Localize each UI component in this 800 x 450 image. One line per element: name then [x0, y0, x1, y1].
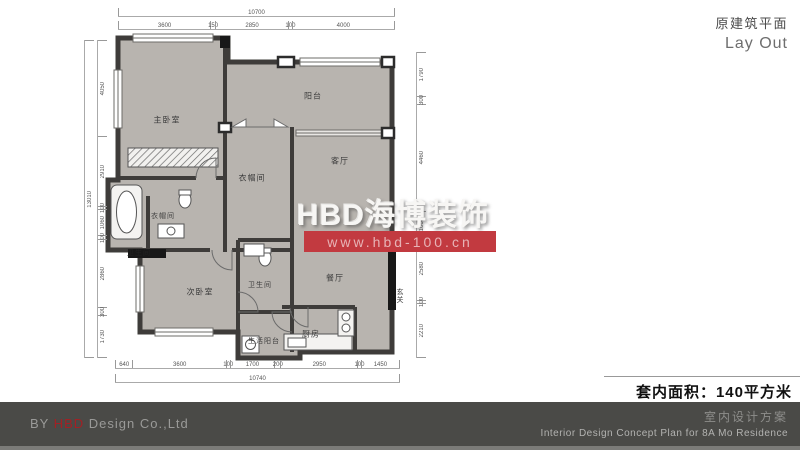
- sheet-title-en: Lay Out: [715, 35, 788, 53]
- dim-top-segments: 360015028501004000: [118, 21, 395, 30]
- dimension-value: 4000: [292, 21, 395, 29]
- sheet-header: 原建筑平面 Lay Out: [715, 13, 788, 53]
- dimension-value: 10740: [115, 374, 400, 382]
- footer-company: BY HBD Design Co.,Ltd: [30, 416, 189, 431]
- dim-top-total: 10700: [118, 8, 395, 17]
- room-label-bathroom-left: 卫生间: [127, 248, 151, 258]
- dimension-value: 3600: [132, 360, 226, 368]
- dimension-value: 300: [417, 96, 426, 104]
- dimension-value: 10700: [118, 8, 395, 16]
- dimension-value: 2850: [215, 21, 288, 29]
- dimension-value: 1060: [98, 209, 107, 235]
- footer-project: 室内设计方案 Interior Design Concept Plan for …: [541, 408, 788, 439]
- room-label-entry-hall: 玄关: [394, 288, 404, 304]
- footer-title-cn: 室内设计方案: [541, 408, 788, 425]
- dim-bottom-segments: 6403600100170020029501001450: [115, 360, 400, 369]
- footer-by: BY: [30, 416, 54, 431]
- room-label-service-balcony: 生活阳台: [248, 336, 280, 346]
- dimension-value: 2950: [280, 360, 357, 368]
- footer-brand: HBD: [54, 416, 84, 431]
- dimension-value: 1790: [417, 52, 426, 96]
- area-note-divider: [604, 376, 800, 377]
- dim-left-segments: 40502910100106010028603001730: [97, 40, 107, 358]
- area-note: 套内面积：140平方米: [636, 381, 792, 402]
- dimension-value: 1730: [98, 315, 107, 358]
- dimension-value: 4050: [98, 40, 107, 136]
- room-label-kitchen: 厨房: [302, 329, 320, 340]
- room-label-balcony: 阳台: [304, 91, 322, 102]
- footer-company-name: Design Co.,Ltd: [84, 416, 189, 431]
- room-label-closet-small: 衣帽间: [151, 211, 175, 221]
- dimension-value: 300: [98, 307, 107, 315]
- dimension-value: 2860: [98, 239, 107, 307]
- dimension-value: 100: [98, 235, 107, 238]
- watermark-url-banner: www.hbd-100.cn: [304, 231, 496, 252]
- dimension-value: 100: [417, 300, 426, 303]
- page: { "header": { "title_cn": "原建筑平面", "titl…: [0, 0, 800, 450]
- footer-title-en: Interior Design Concept Plan for 8A Mo R…: [541, 428, 788, 439]
- room-label-living-room: 客厅: [331, 156, 349, 167]
- room-label-bathroom-center: 卫生间: [248, 280, 272, 290]
- footer-bar: BY HBD Design Co.,Ltd 室内设计方案 Interior De…: [0, 402, 800, 446]
- room-label-master-bedroom: 主卧室: [154, 115, 181, 126]
- dim-left-total: 13010: [84, 40, 94, 358]
- room-label-second-bedroom: 次卧室: [187, 287, 214, 298]
- footer-bottom-strip: [0, 446, 800, 450]
- dimension-value: 2210: [417, 303, 426, 358]
- dimension-value: 100: [98, 206, 107, 209]
- dimension-value: 3600: [118, 21, 210, 29]
- watermark-url: www.hbd-100.cn: [327, 234, 473, 250]
- room-label-dining-room: 餐厅: [326, 273, 344, 284]
- dimension-value: 13010: [85, 40, 94, 358]
- sheet-title-cn: 原建筑平面: [715, 13, 788, 32]
- dimension-value: 1450: [361, 360, 400, 368]
- room-label-walkin-closet: 衣帽间: [239, 173, 266, 184]
- dimension-value: 640: [115, 360, 132, 368]
- dimension-value: 1700: [230, 360, 275, 368]
- dim-bottom-total: 10740: [115, 374, 400, 383]
- dimension-value: 2910: [98, 136, 107, 206]
- watermark-brand: HBD海博装饰: [297, 190, 489, 234]
